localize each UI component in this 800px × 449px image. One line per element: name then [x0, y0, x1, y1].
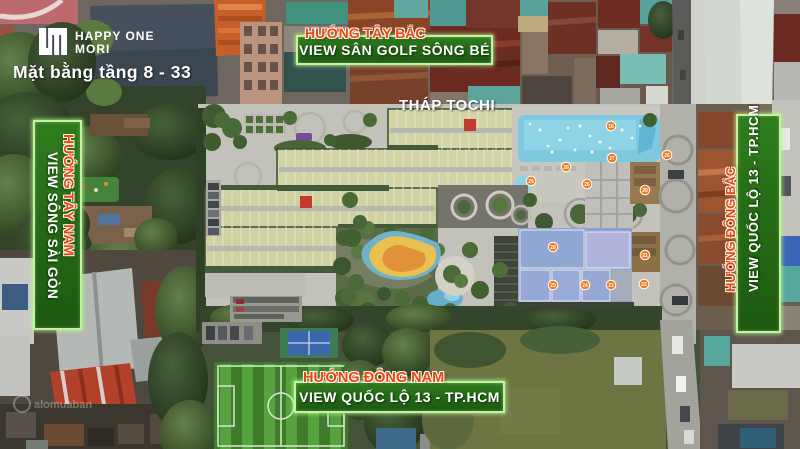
svg-text:16: 16 — [608, 124, 614, 130]
svg-text:24: 24 — [582, 283, 588, 289]
svg-text:29: 29 — [528, 179, 534, 185]
svg-text:20: 20 — [642, 188, 648, 194]
svg-text:26: 26 — [664, 153, 670, 159]
svg-text:27: 27 — [609, 156, 615, 162]
svg-text:25: 25 — [550, 283, 556, 289]
svg-text:23: 23 — [608, 283, 614, 289]
svg-text:26: 26 — [584, 182, 590, 188]
svg-text:alomuaban: alomuaban — [34, 399, 92, 411]
svg-text:28: 28 — [563, 165, 569, 171]
svg-text:21: 21 — [642, 253, 648, 259]
svg-text:28: 28 — [550, 245, 556, 251]
svg-text:22: 22 — [641, 282, 647, 288]
